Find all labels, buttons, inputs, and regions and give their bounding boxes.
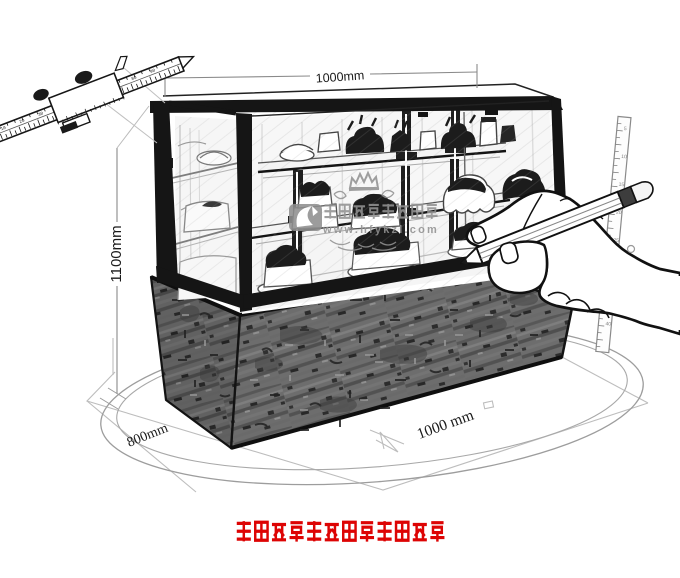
svg-text:10: 10 <box>621 154 627 161</box>
svg-text:15: 15 <box>618 182 624 189</box>
svg-text:www.hfykzl.com: www.hfykzl.com <box>322 224 439 236</box>
svg-text:1100mm: 1100mm <box>108 225 125 282</box>
svg-text:40: 40 <box>605 321 611 328</box>
